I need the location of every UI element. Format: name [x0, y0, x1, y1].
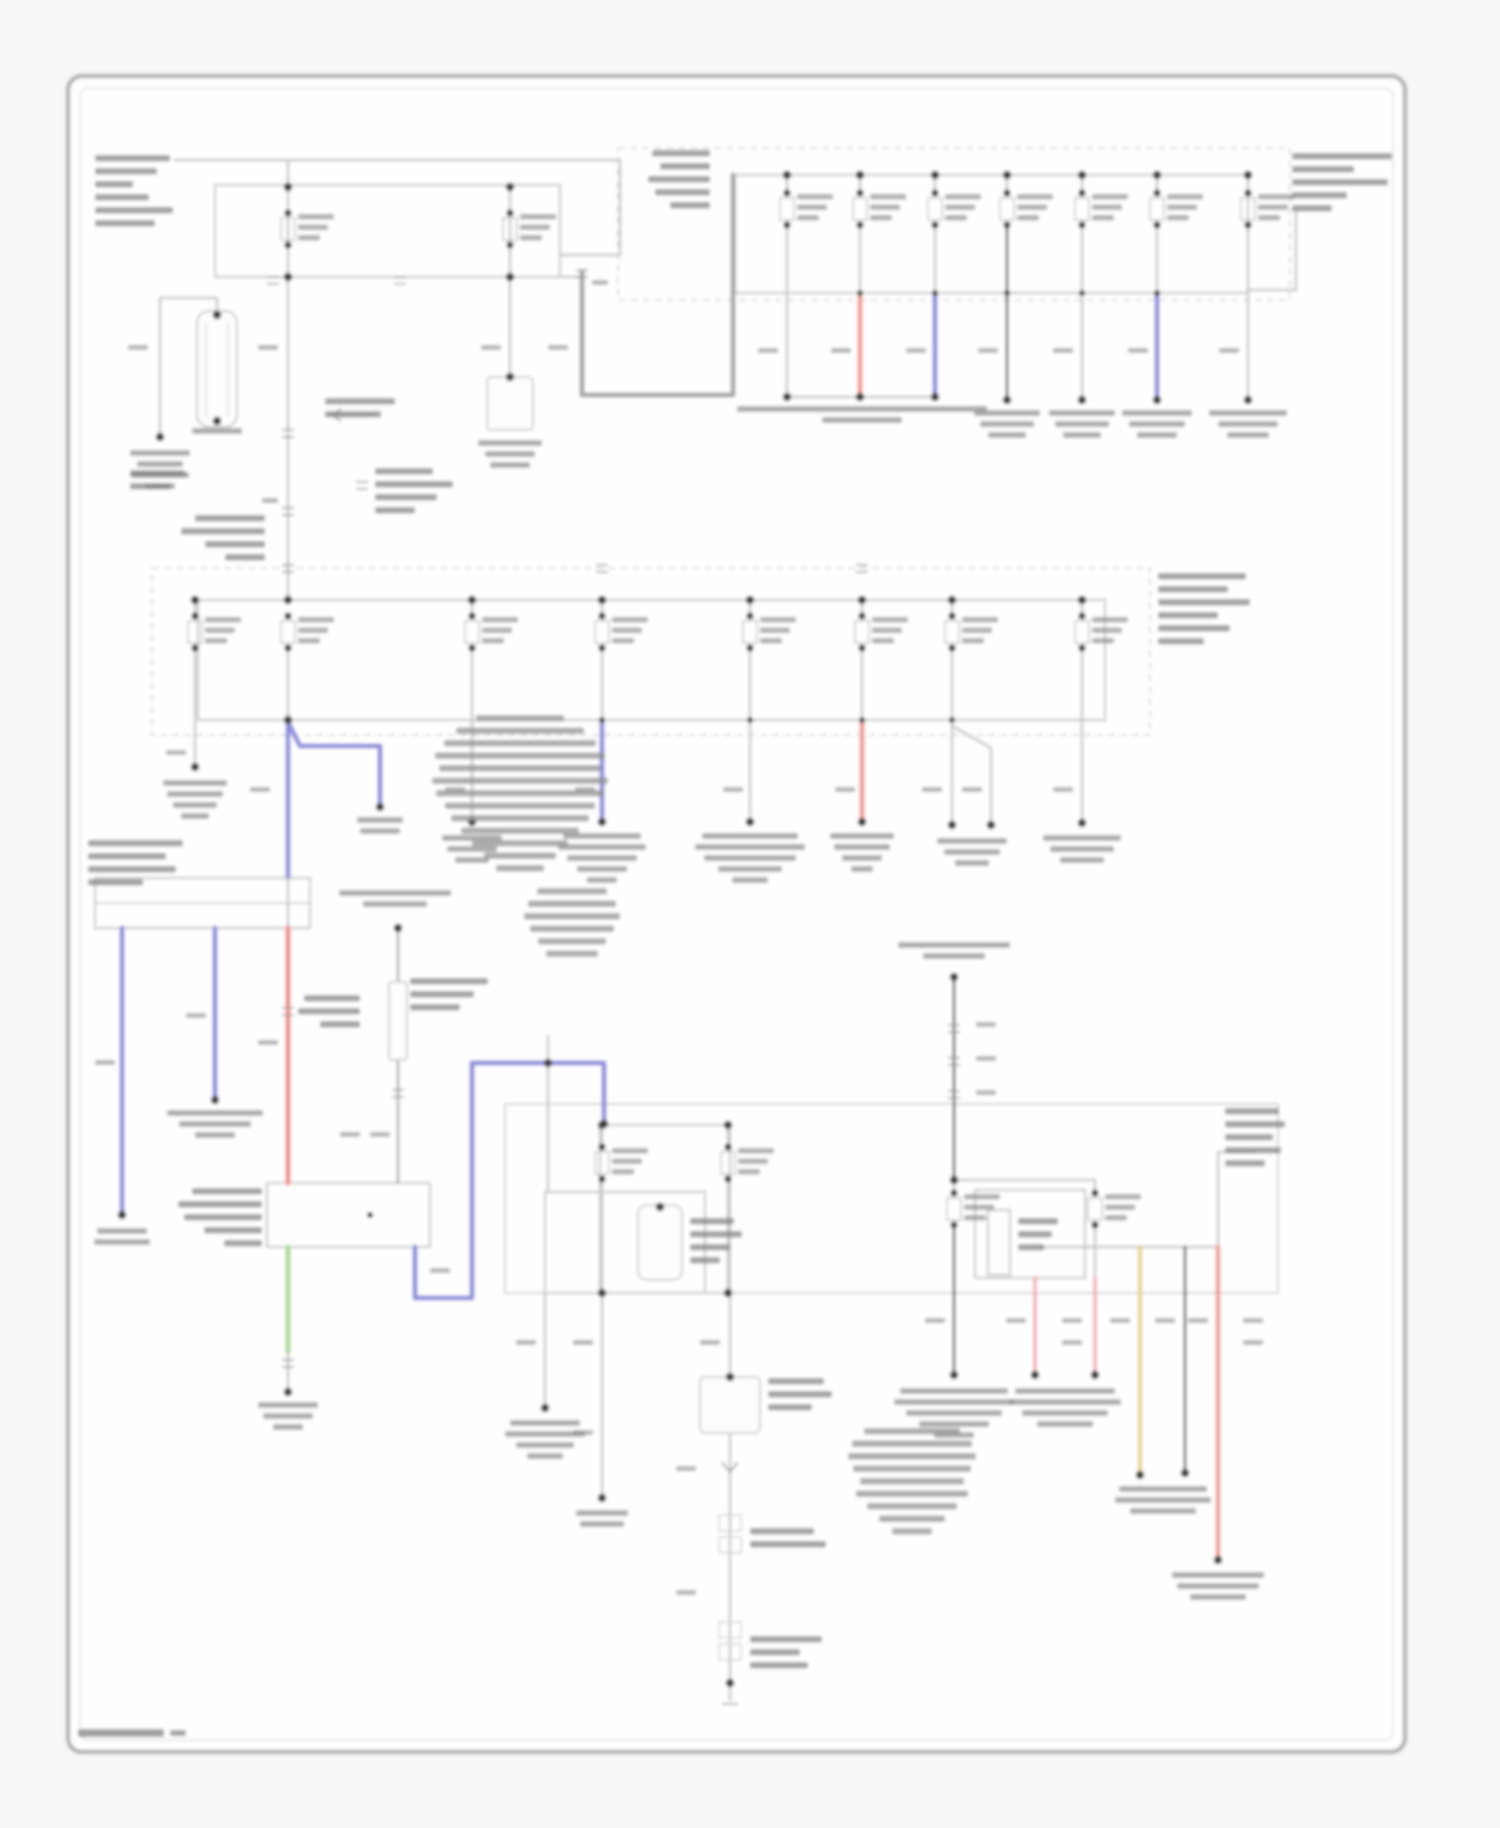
label-text-blob [1022, 1410, 1108, 1416]
junction-dot [394, 924, 402, 932]
note-text-cloud-blob [860, 1478, 964, 1485]
wire-code-label-blob [516, 1340, 536, 1345]
label-text-blob [130, 450, 190, 456]
label-text-blob [510, 1420, 580, 1426]
fuse-label-text-blob [298, 638, 320, 644]
wire-code-label-blob [978, 348, 998, 353]
label-text-blob [1119, 1486, 1207, 1492]
component-box [638, 1205, 682, 1280]
label-text-blob [204, 1227, 262, 1234]
fuse-label-text-blob [1092, 617, 1128, 623]
page-caption-blob [78, 1729, 164, 1737]
label-text-blob [88, 879, 143, 886]
fuse-label-text-blob [205, 638, 227, 644]
fuse-label-text-blob [797, 194, 833, 200]
label-text-blob [258, 1402, 318, 1408]
label-text-blob [1177, 1583, 1259, 1589]
label-text-blob [95, 207, 173, 214]
label-text-blob [690, 1218, 734, 1225]
wire-code-label-blob [573, 1430, 593, 1435]
label-text-blob [410, 1004, 460, 1011]
fuse-terminal-dot [284, 612, 291, 619]
fuse-terminal-dot [948, 644, 955, 651]
wire-code-label-blob [676, 1590, 696, 1595]
label-text-blob [1050, 846, 1114, 852]
fuse-label-text-blob [1105, 1215, 1127, 1221]
label-text-blob [320, 1021, 360, 1028]
junction-dot [284, 273, 292, 281]
fuse-terminal-dot [1003, 189, 1010, 196]
label-text-blob [360, 828, 400, 834]
fuse-label-text-blob [738, 1159, 768, 1165]
fuse-label-text-blob [205, 628, 235, 634]
junction-dot [859, 717, 865, 723]
fuse-terminal-dot [931, 189, 938, 196]
wire-code-label-blob [430, 1268, 450, 1273]
fuse-label-text-blob [964, 1215, 986, 1221]
fuse-terminal-dot [1244, 221, 1251, 228]
fuse-label-text-blob [964, 1205, 994, 1211]
junction-dot [726, 1679, 734, 1687]
label-text-blob [95, 168, 157, 175]
label-text-blob [1227, 432, 1269, 438]
junction-dot [284, 596, 292, 604]
label-text-blob [137, 461, 183, 467]
junction-dot [932, 290, 938, 296]
fuse-label-text-blob [298, 617, 334, 623]
label-text-blob [750, 1636, 822, 1643]
fuse-label-text-blob [1017, 194, 1053, 200]
wire-code-label-blob [166, 750, 186, 755]
wire-code-label-blob [370, 1132, 390, 1137]
label-text-blob [1055, 421, 1109, 427]
label-text-blob [1158, 638, 1204, 645]
label-text-blob [95, 194, 149, 201]
label-text-blob [375, 494, 437, 501]
junction-dot [857, 290, 863, 296]
junction-dot [856, 393, 864, 401]
note-text-cloud-blob [435, 753, 605, 760]
label-text-blob [842, 855, 882, 861]
label-text-blob [695, 844, 805, 850]
label-text-blob [718, 866, 782, 872]
fuse-label-text-blob [738, 1148, 774, 1154]
fuse-label-text-blob [870, 205, 900, 211]
junction-dot [213, 417, 221, 425]
label-text-blob [1009, 1399, 1121, 1405]
label-text-blob [325, 411, 381, 418]
label-text-blob [1130, 1508, 1196, 1514]
label-text-blob [750, 1541, 826, 1548]
label-text-blob [1292, 179, 1388, 186]
label-text-blob [768, 1391, 832, 1398]
label-text-blob [88, 866, 176, 873]
wire-code-label-blob [1188, 1318, 1208, 1323]
junction-dot [284, 1388, 292, 1396]
wire-code-label-blob [700, 1340, 720, 1345]
fuse-terminal-dot [284, 209, 291, 216]
label-text-blob [1158, 573, 1246, 580]
label-text-blob [652, 150, 710, 157]
fuse-terminal-dot [856, 189, 863, 196]
junction-dot [858, 596, 866, 604]
fuse-terminal-dot [506, 241, 513, 248]
note-text-cloud-blob [530, 926, 614, 933]
fuse-terminal-dot [783, 221, 790, 228]
wire-code-label-blob [575, 787, 595, 792]
junction-dot [598, 818, 606, 826]
junction-dot [1244, 396, 1252, 404]
wire-code-label-blob [1128, 348, 1148, 353]
fuse-label-text-blob [298, 225, 328, 231]
fuse-terminal-dot [724, 1143, 731, 1150]
fuse-label-text-blob [612, 628, 642, 634]
fuse-terminal-dot [1078, 612, 1085, 619]
junction-dot [1214, 1556, 1222, 1564]
label-text-blob [1115, 1497, 1211, 1503]
fuse-label-text-blob [612, 617, 648, 623]
fuse-label-text-blob [1092, 215, 1114, 221]
fuse-label-text-blob [1105, 1194, 1141, 1200]
label-text-blob [97, 1228, 147, 1234]
junction-dot [1181, 1469, 1189, 1477]
fuse-label-text-blob [482, 617, 518, 623]
note-text-cloud-blob [451, 815, 589, 822]
label-text-blob [980, 421, 1034, 427]
fuse-terminal-dot [858, 644, 865, 651]
label-text-blob [95, 155, 170, 162]
junction-dot [191, 596, 199, 604]
junction-dot [747, 717, 753, 723]
note-text-cloud-blob [848, 1453, 976, 1460]
note-text-cloud-blob [439, 765, 601, 772]
label-text-blob [1209, 410, 1287, 416]
note-text-cloud-blob [528, 901, 616, 908]
junction-dot [1078, 171, 1086, 179]
label-text-blob [567, 855, 637, 861]
wire-code-label-blob [1110, 1318, 1130, 1323]
fuse-label-text-blob [872, 617, 908, 623]
label-text-blob [88, 853, 166, 860]
junction-dot [284, 183, 292, 191]
fuse-label-text-blob [1017, 205, 1047, 211]
fuse-terminal-dot [950, 1221, 957, 1228]
fuse-terminal-dot [950, 1189, 957, 1196]
note-text-cloud-blob [476, 715, 564, 722]
label-text-blob [95, 220, 155, 227]
junction-dot [211, 1096, 219, 1104]
label-text-blob [527, 1453, 563, 1459]
label-text-blob [898, 942, 1010, 948]
label-text-blob [181, 528, 265, 535]
fuse-label-text-blob [1167, 215, 1189, 221]
junction-dot [1091, 1371, 1099, 1379]
label-text-blob [732, 877, 768, 883]
label-text-blob [1018, 1231, 1052, 1238]
junction-dot [656, 1203, 664, 1211]
label-text-blob [485, 451, 535, 457]
fuse-terminal-dot [1091, 1189, 1098, 1196]
label-text-blob [179, 1121, 251, 1127]
junction-dot [191, 763, 199, 771]
junction-dot [1079, 290, 1085, 296]
junction-dot [541, 1404, 549, 1412]
power-distribution-wiring-diagram [0, 0, 1500, 1828]
wire-code-label-blob [262, 498, 278, 503]
junction-dot [1153, 171, 1161, 179]
note-text-cloud-blob [546, 951, 598, 958]
fuse-label-text-blob [1258, 205, 1288, 211]
wire-code-label-blob [835, 787, 855, 792]
label-text-blob [410, 978, 488, 985]
wire-code-label-blob [95, 1060, 115, 1065]
label-text-blob [273, 1424, 303, 1430]
junction-dot [213, 311, 221, 319]
label-text-blob [1018, 1218, 1058, 1225]
label-text-blob [768, 1404, 812, 1411]
fuse-label-text-blob [962, 628, 992, 634]
label-text-blob [690, 1231, 742, 1238]
fuse-label-text-blob [612, 1159, 642, 1165]
label-text-blob [1225, 1108, 1279, 1115]
note-text-cloud-blob [432, 778, 608, 785]
label-text-blob [655, 189, 710, 196]
label-text-blob [490, 462, 530, 468]
label-text-blob [834, 844, 890, 850]
label-text-blob [178, 1201, 262, 1208]
label-text-blob [1172, 1572, 1264, 1578]
label-text-blob [1292, 205, 1332, 212]
label-text-blob [1122, 410, 1192, 416]
junction-dot [598, 596, 606, 604]
junction-dot [746, 596, 754, 604]
fuse-terminal-dot [856, 221, 863, 228]
label-text-blob [1043, 835, 1121, 841]
label-text-blob [944, 849, 1000, 855]
fuse-label-text-blob [797, 205, 827, 211]
junction-dot [118, 1211, 126, 1219]
label-text-blob [937, 838, 1007, 844]
label-text-blob [1225, 1134, 1273, 1141]
fuse-terminal-dot [1153, 189, 1160, 196]
wire-code-label-blob [758, 348, 778, 353]
note-text-cloud-blob [524, 913, 620, 920]
label-text-blob [325, 398, 395, 405]
wire-code-label-blob [831, 348, 851, 353]
fuse-label-text-blob [945, 215, 967, 221]
label-text-blob [478, 440, 542, 446]
label-text-blob [768, 1378, 824, 1385]
label-text-blob [900, 1388, 1008, 1394]
label-text-blob [1225, 1121, 1285, 1128]
fuse-label-text-blob [612, 1148, 648, 1154]
junction-dot [948, 596, 956, 604]
label-text-blob [88, 840, 183, 847]
label-text-blob [1049, 410, 1115, 416]
fuse-label-text-blob [612, 638, 634, 644]
label-text-blob [339, 890, 451, 896]
label-text-blob [648, 176, 710, 183]
fuse-terminal-dot [1078, 189, 1085, 196]
label-text-blob [704, 855, 796, 861]
fuse-label-text-blob [205, 617, 241, 623]
junction-dot [1003, 396, 1011, 404]
junction-dot [987, 821, 995, 829]
fuse-label-text-blob [870, 194, 906, 200]
fuse-label-text-blob [872, 628, 902, 634]
wire-code-label-blob [548, 345, 568, 350]
fuse-label-text-blob [738, 1169, 760, 1175]
note-text-cloud-blob [538, 938, 606, 945]
fuse-terminal-dot [598, 644, 605, 651]
wire-code-label-blob [1062, 1340, 1082, 1345]
label-text-blob [167, 791, 223, 797]
wire-code-label-blob [1062, 1318, 1082, 1323]
junction-dot [1004, 290, 1010, 296]
note-text-cloud-blob [853, 1466, 971, 1473]
wire-code-label-blob [445, 787, 465, 792]
junction-dot [1153, 396, 1161, 404]
label-text-blob [195, 1132, 235, 1138]
junction-dot [506, 373, 514, 381]
junction-dot [598, 1494, 606, 1502]
wire-code-label-blob [1243, 1318, 1263, 1323]
junction-dot [1136, 1471, 1144, 1479]
label-text-blob [822, 417, 902, 423]
fuse-label-text-blob [1092, 194, 1128, 200]
junction-dot [724, 1121, 732, 1129]
label-text-blob [163, 780, 227, 786]
wire-code-label-blob [676, 1466, 696, 1471]
label-text-blob [224, 1240, 262, 1247]
wire-code-label-blob [258, 1040, 278, 1045]
label-text-blob [1158, 612, 1218, 619]
wire-code-label-blob [258, 345, 278, 350]
wire-code-label-blob [1155, 1318, 1175, 1323]
fuse-terminal-dot [284, 644, 291, 651]
battery-icon [197, 311, 237, 427]
label-text-blob [1225, 1147, 1281, 1154]
fuse-terminal-dot [1153, 221, 1160, 228]
wire-code-label-blob [1053, 787, 1073, 792]
fuse-label-text-blob [945, 194, 981, 200]
label-text-blob [195, 515, 265, 522]
label-text-blob [1137, 432, 1177, 438]
label-text-blob [988, 432, 1026, 438]
label-text-blob [580, 1521, 624, 1527]
fuse-label-text-blob [962, 638, 984, 644]
fuse-terminal-dot [506, 209, 513, 216]
fuse-label-text-blob [1167, 194, 1203, 200]
fuse-label-text-blob [1092, 628, 1122, 634]
fuse-terminal-dot [948, 612, 955, 619]
label-text-blob [737, 406, 987, 412]
label-text-blob [923, 953, 985, 959]
fuse-terminal-dot [598, 1143, 605, 1150]
fuse-label-text-blob [482, 628, 512, 634]
wire-code-label-blob [1219, 348, 1239, 353]
junction-dot [506, 273, 514, 281]
fuse-terminal-dot [468, 612, 475, 619]
label-text-blob [95, 181, 133, 188]
label-text-blob [1037, 1421, 1093, 1427]
junction-dot [949, 717, 955, 723]
junction-dot [950, 1371, 958, 1379]
page-caption-blob [170, 1730, 186, 1736]
label-text-blob [225, 554, 265, 561]
fuse-label-text-blob [797, 215, 819, 221]
fuse-label-text-blob [520, 225, 550, 231]
label-text-blob [173, 802, 217, 808]
label-text-blob [750, 1662, 808, 1669]
label-text-blob [1292, 153, 1392, 160]
label-text-blob [298, 1008, 360, 1015]
fuse-terminal-dot [858, 612, 865, 619]
junction-dot [724, 1289, 732, 1297]
junction-dot [367, 1212, 373, 1218]
wire-code-label-blob [1243, 1340, 1263, 1345]
label-text-blob [750, 1649, 800, 1656]
fuse-label-text-blob [760, 628, 790, 634]
wire-code-label-blob [1053, 348, 1073, 353]
label-text-blob [576, 1510, 628, 1516]
note-text-cloud-blob [852, 1441, 972, 1448]
wire-code-label-blob [922, 787, 942, 792]
fuse-label-text-blob [1258, 215, 1280, 221]
junction-dot [783, 171, 791, 179]
note-text-cloud-blob [892, 1528, 932, 1535]
label-text-blob [894, 1399, 1014, 1405]
label-text-blob [1018, 1244, 1044, 1251]
junction-dot [1078, 396, 1086, 404]
label-text-blob [587, 877, 617, 883]
note-text-cloud-blob [879, 1516, 945, 1523]
label-text-blob [167, 1110, 263, 1116]
label-text-blob [1158, 625, 1230, 632]
note-text-cloud-blob [864, 1428, 960, 1435]
wire-code-label-blob [976, 1022, 996, 1027]
junction-dot [1078, 596, 1086, 604]
label-text-blob [94, 1239, 150, 1245]
label-text-blob [1225, 1160, 1265, 1167]
junction-dot [376, 803, 384, 811]
junction-dot [506, 183, 514, 191]
fuse-terminal-dot [1091, 1221, 1098, 1228]
fuse-terminal-dot [1244, 189, 1251, 196]
fuse-label-text-blob [1167, 205, 1197, 211]
label-text-blob [851, 866, 873, 872]
junction-dot [1154, 290, 1160, 296]
component-box [700, 1377, 760, 1433]
wire-code-label-blob [481, 345, 501, 350]
component-box [389, 982, 407, 1060]
note-text-cloud-blob [445, 803, 595, 810]
wire-code-label-blob [906, 348, 926, 353]
label-text-blob [375, 481, 453, 488]
label-text-blob [304, 995, 360, 1002]
label-text-blob [130, 483, 170, 490]
wire-code-label-blob [573, 1340, 593, 1345]
label-text-blob [1063, 432, 1101, 438]
label-text-blob [1060, 857, 1104, 863]
junction-dot [599, 717, 605, 723]
junction-dot [948, 821, 956, 829]
fuse-label-text-blob [760, 638, 782, 644]
fuse-label-text-blob [1017, 215, 1039, 221]
junction-dot [1078, 819, 1086, 827]
junction-dot [598, 1289, 606, 1297]
wire-code-label-blob [592, 280, 608, 285]
